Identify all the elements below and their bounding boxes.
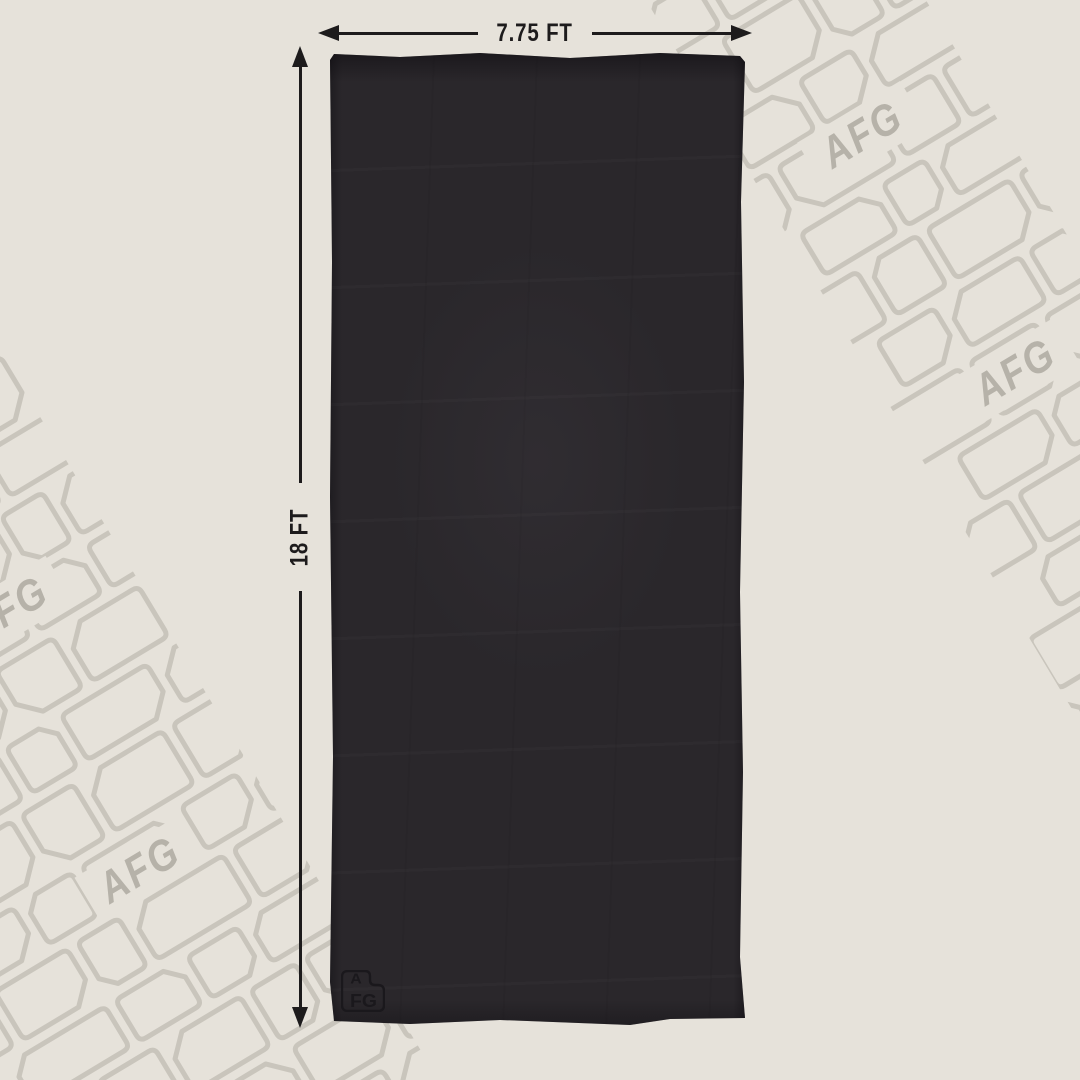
tread-shape xyxy=(1024,691,1080,771)
dimension-line xyxy=(592,32,731,35)
tread-shape xyxy=(0,200,24,307)
width-label: 7.75 FT xyxy=(478,21,591,46)
badge-letter-a: A xyxy=(350,972,362,988)
arrow-left-icon xyxy=(318,25,339,41)
afg-logo-badge: A FG xyxy=(341,970,385,1012)
dimension-width: 7.75 FT xyxy=(318,23,752,43)
dimension-line xyxy=(299,67,302,483)
product-image: AFGAFG AFGAFG A FG 7.75 FT 18 FT xyxy=(0,0,1080,1080)
dimension-line xyxy=(339,32,478,35)
badge-letters-fg: FG xyxy=(350,990,377,1011)
dimension-line xyxy=(299,591,302,1007)
tread-shape xyxy=(48,425,179,538)
arrow-right-icon xyxy=(731,25,752,41)
mat-product: A FG xyxy=(330,52,745,1026)
tread-shape xyxy=(0,237,96,341)
dimension-height: 18 FT xyxy=(289,46,311,1028)
height-label: 18 FT xyxy=(265,483,335,591)
arrow-up-icon xyxy=(292,46,308,67)
tread-shape xyxy=(80,356,169,440)
tread-shape xyxy=(1035,50,1080,136)
tread-shape xyxy=(484,1052,580,1080)
tread-shape xyxy=(946,0,1028,37)
tread-shape xyxy=(0,118,37,204)
tread-shape xyxy=(143,456,258,555)
arrow-down-icon xyxy=(292,1007,308,1028)
